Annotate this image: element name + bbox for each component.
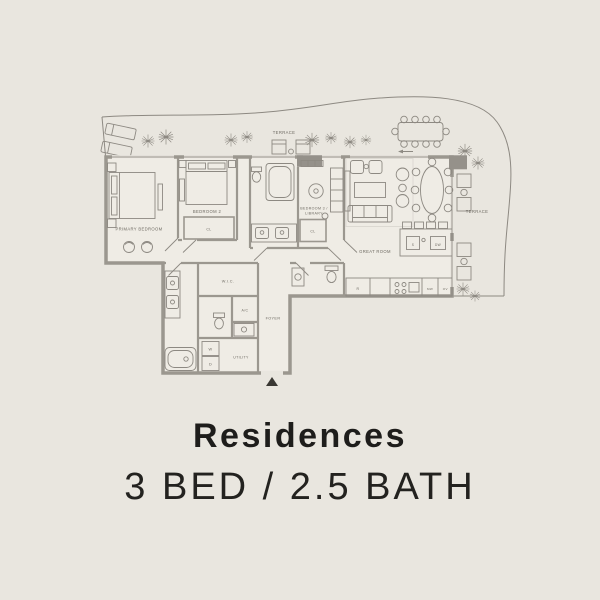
plan-subtitle: 3 BED / 2.5 BATH [0, 466, 600, 509]
label-wic: W.I.C. [222, 280, 234, 284]
label-refrigerator: R [357, 287, 360, 291]
page: TERRACE TERRACE PRIMARY BEDROOM BEDROOM … [0, 0, 600, 600]
label-washer: W [209, 348, 213, 352]
label-utility: UTILITY [233, 356, 249, 360]
label-terrace-top: TERRACE [273, 130, 295, 135]
floor-plan: TERRACE TERRACE PRIMARY BEDROOM BEDROOM … [0, 0, 600, 410]
plant-icon [457, 283, 470, 296]
plant-icon [241, 131, 253, 143]
label-dryer: D [209, 363, 212, 367]
lounge-chairs-top-left [101, 123, 137, 158]
floor-plan-svg: TERRACE TERRACE PRIMARY BEDROOM BEDROOM … [0, 0, 600, 410]
label-closet-bedroom2: CL [206, 228, 211, 232]
label-terrace-right: TERRACE [466, 209, 488, 214]
label-dishwasher: DW [435, 243, 441, 247]
plant-icon [472, 157, 485, 170]
terrace-door-arrow-icon [398, 150, 413, 154]
label-island-sink: S [412, 243, 414, 247]
plan-title: Residences [0, 417, 600, 456]
label-foyer: FOYER [266, 317, 281, 321]
label-ac: A/C [242, 309, 249, 313]
label-bedroom-2: BEDROOM 2 [193, 209, 222, 214]
terrace-right-furniture [457, 174, 471, 280]
plant-icon [159, 130, 174, 145]
label-closet-bedroom3: CL [310, 230, 315, 234]
label-bedroom-3: BEDROOM 3 / [300, 207, 327, 211]
column [449, 155, 467, 169]
entry-arrow-icon [266, 377, 278, 386]
plant-icon [325, 132, 337, 144]
plant-icon [225, 134, 238, 147]
plant-icon [469, 290, 480, 301]
label-microwave: MW [427, 287, 433, 291]
label-oven: OV [443, 287, 448, 291]
label-library: LIBRARY [305, 212, 323, 216]
label-primary-bedroom: PRIMARY BEDROOM [116, 227, 163, 232]
outdoor-dining-table [392, 116, 450, 147]
caption: Residences 3 BED / 2.5 BATH [0, 417, 600, 509]
terrace-lounge-center [272, 140, 310, 154]
plant-icon [142, 135, 155, 148]
plant-icon [361, 135, 371, 145]
label-great-room: GREAT ROOM [359, 249, 391, 254]
plant-icon [344, 136, 356, 148]
